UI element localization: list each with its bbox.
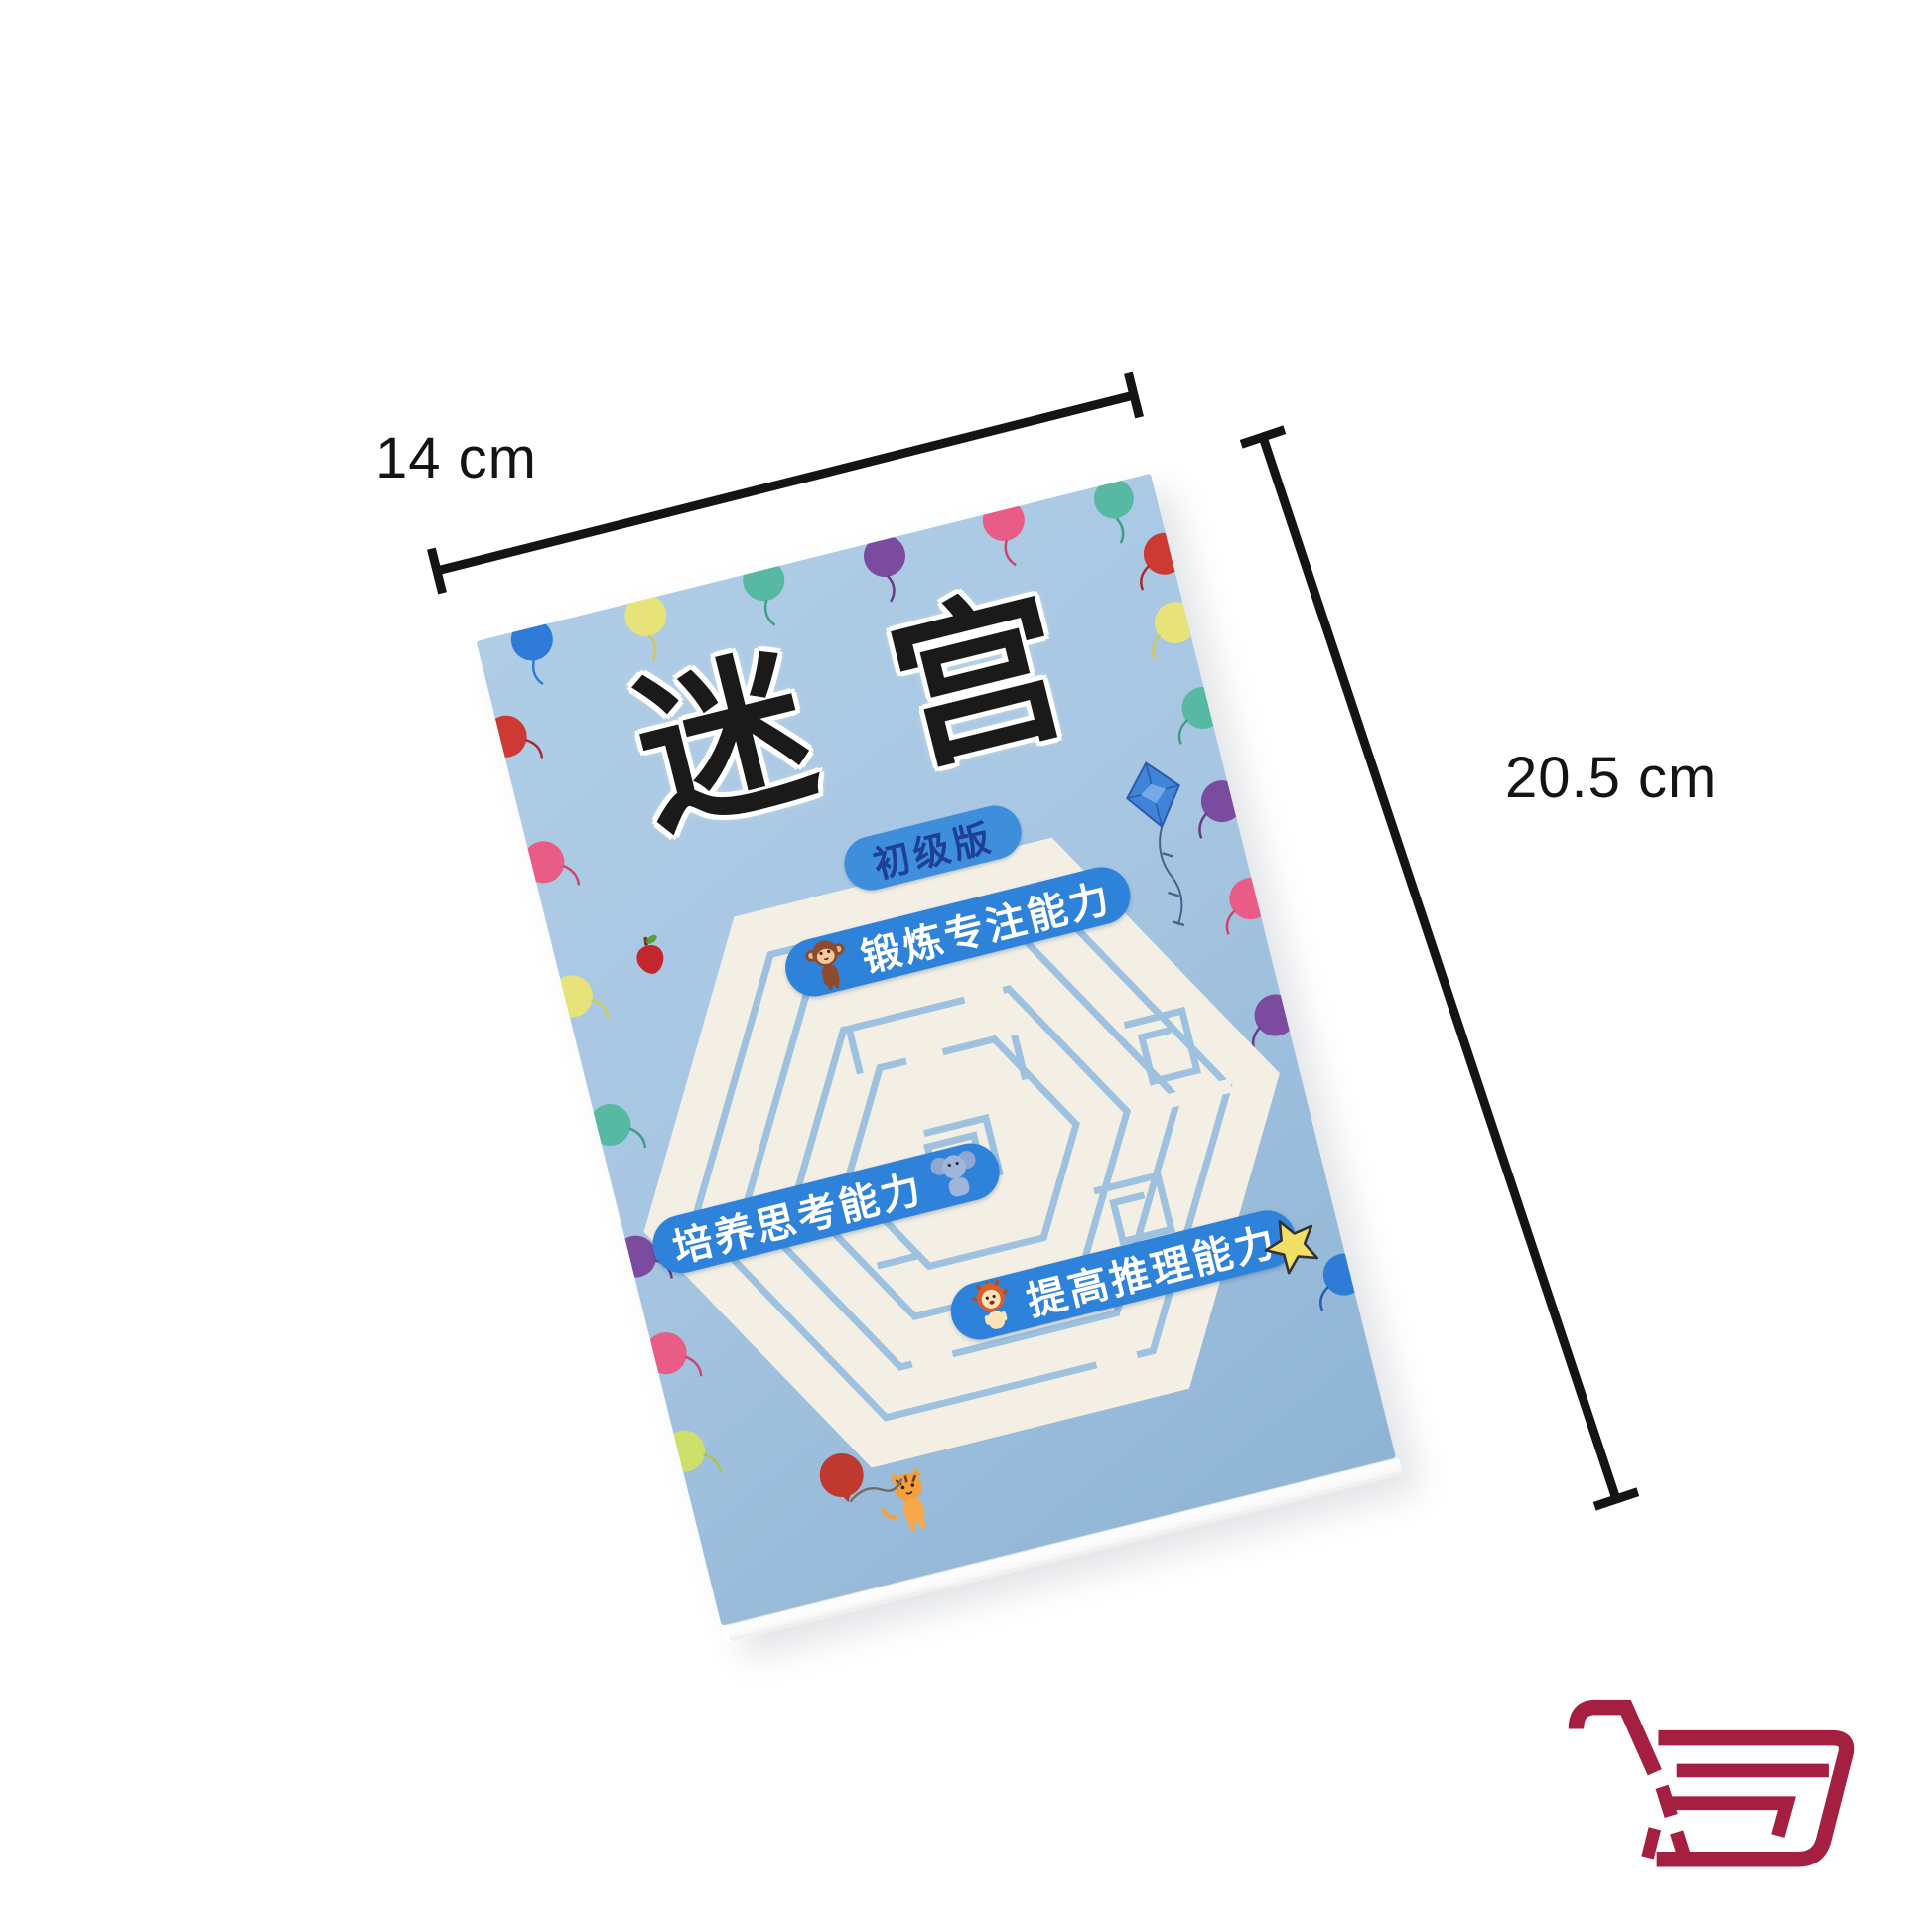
book-cover: 迷宫 初级版 锻炼专注能力 培养思考能力 — [477, 474, 1396, 1626]
lion-icon — [965, 1276, 1023, 1339]
maze-book: 迷宫 初级版 锻炼专注能力 培养思考能力 — [477, 474, 1401, 1643]
height-dimension-label: 20.5 cm — [1505, 745, 1717, 811]
width-dimension-label: 14 cm — [375, 425, 537, 491]
elephant-icon — [926, 1144, 986, 1207]
product-photo: 迷宫 初级版 锻炼专注能力 培养思考能力 — [0, 0, 1932, 1932]
monkey-icon — [799, 932, 857, 996]
shopping-cart-logo — [1561, 1676, 1868, 1894]
